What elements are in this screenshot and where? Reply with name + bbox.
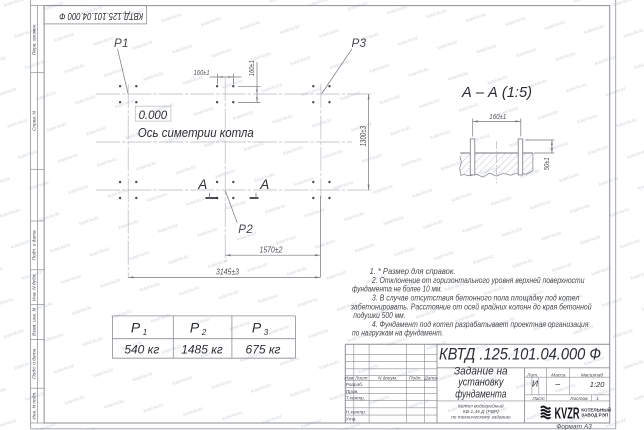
svg-text:Инв. N подл.: Инв. N подл. (32, 392, 38, 420)
svg-text:Лист: Лист (531, 396, 544, 402)
svg-text:540 кг: 540 кг (124, 343, 159, 357)
svg-text:Пров.: Пров. (346, 389, 359, 395)
svg-text:1. * Размер для справок.: 1. * Размер для справок. (370, 267, 456, 276)
svg-text:1: 1 (596, 396, 599, 402)
svg-text:1485 кг: 1485 кг (181, 343, 223, 357)
svg-text:фундамента: фундамента (455, 389, 506, 401)
svg-text:Формат А3: Формат А3 (556, 423, 592, 430)
svg-text:160±1: 160±1 (489, 112, 506, 121)
svg-text:Справ. N: Справ. N (32, 110, 38, 131)
svg-text:Т.контр.: Т.контр. (346, 396, 365, 402)
svg-text:P3: P3 (352, 38, 367, 50)
svg-text:Дата: Дата (423, 376, 437, 382)
svg-text:4. Фундамент под котел разраб: 4. Фундамент под котел разрабатывает про… (372, 320, 589, 329)
svg-text:А: А (197, 177, 207, 192)
svg-text:Листов: Листов (569, 396, 588, 402)
svg-text:Подп. и дата: Подп. и дата (32, 230, 38, 260)
svg-text:Инв. N дубл.: Инв. N дубл. (32, 273, 38, 301)
svg-text:Задание на: Задание на (454, 365, 508, 377)
svg-text:А: А (259, 177, 269, 192)
svg-text:Масса: Масса (551, 372, 566, 378)
svg-text:0.000: 0.000 (139, 108, 168, 122)
svg-text:Подп.: Подп. (409, 376, 422, 382)
svg-text:фундамента не более 10 мм.: фундамента не более 10 мм. (352, 285, 442, 294)
svg-text:забетонировать. Расстояние от: забетонировать. Расстояние от осей крайн… (350, 302, 592, 311)
svg-text:P1: P1 (114, 38, 129, 50)
svg-text:Котел водогрейный: Котел водогрейный (458, 403, 504, 410)
svg-text:2. Отклонение от горизонтальн: 2. Отклонение от горизонтального уровня … (371, 276, 585, 285)
svg-text:по техническому заданию: по техническому заданию (451, 415, 511, 421)
svg-text:подушки 500 мм.: подушки 500 мм. (353, 311, 405, 320)
svg-text:1300±3: 1300±3 (359, 126, 368, 147)
svg-text:2: 2 (201, 328, 207, 337)
svg-text:Подп. и дата: Подп. и дата (32, 348, 38, 378)
svg-text:50±1: 50±1 (542, 157, 551, 170)
svg-text:P: P (131, 320, 141, 336)
svg-text:КВТД .125.101.04.000 Ф: КВТД .125.101.04.000 Ф (439, 345, 601, 363)
svg-text:Разраб.: Разраб. (346, 382, 363, 388)
svg-text:Лист: Лист (354, 376, 367, 382)
svg-text:1: 1 (143, 328, 147, 337)
svg-text:3. В случае отсутствия бетонн: 3. В случае отсутствия бетонного пола пл… (372, 294, 580, 303)
svg-text:КВ-1,45 Д (РВР): КВ-1,45 Д (РВР) (463, 409, 499, 415)
svg-text:Ось симетрии котла: Ось симетрии котла (138, 126, 254, 140)
svg-text:И: И (532, 378, 539, 388)
svg-text:3145±3: 3145±3 (216, 267, 239, 276)
svg-text:по нагрузкам на фундамент.: по нагрузкам на фундамент. (352, 329, 443, 338)
svg-text:160±1: 160±1 (194, 68, 210, 77)
svg-text:–: – (554, 379, 560, 389)
svg-text:P2: P2 (238, 224, 253, 236)
svg-text:Перв. примен.: Перв. примен. (32, 23, 38, 55)
svg-text:КОТЕЛЬНЫЙ: КОТЕЛЬНЫЙ (581, 405, 611, 412)
svg-text:КВТД.125.101.04.000 Ф: КВТД.125.101.04.000 Ф (59, 10, 143, 22)
svg-text:Н.контр.: Н.контр. (346, 410, 366, 416)
svg-text:ЗАВОД РЭП: ЗАВОД РЭП (581, 412, 608, 417)
svg-text:3: 3 (264, 328, 269, 337)
svg-text:1570±2: 1570±2 (260, 245, 283, 254)
svg-text:А – А (1:5): А – А (1:5) (461, 84, 532, 101)
svg-text:P: P (252, 320, 262, 336)
svg-text:P: P (190, 320, 200, 336)
svg-text:KVZR: KVZR (555, 405, 580, 422)
svg-text:160±1: 160±1 (247, 60, 256, 76)
svg-text:Взам. инв. N: Взам. инв. N (32, 308, 38, 336)
svg-text:Утв.: Утв. (346, 416, 357, 422)
svg-text:Масштаб: Масштаб (581, 372, 604, 378)
svg-text:установку: установку (457, 377, 504, 389)
svg-text:675 кг: 675 кг (246, 343, 281, 357)
svg-text:Изм.: Изм. (344, 376, 354, 382)
svg-text:N докум.: N докум. (378, 376, 397, 382)
svg-text:1:20: 1:20 (590, 380, 605, 389)
